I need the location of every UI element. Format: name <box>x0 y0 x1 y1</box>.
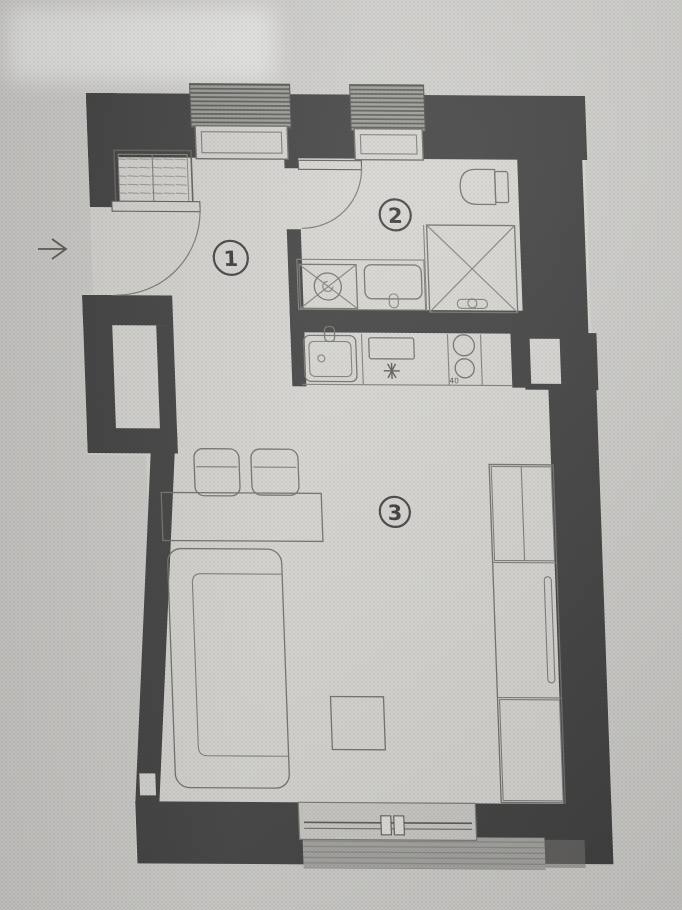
balcony-door <box>298 802 476 840</box>
svg-text:1: 1 <box>223 247 238 271</box>
balcony-door-mullion <box>394 816 405 835</box>
shaft-wall-bottom <box>87 428 178 454</box>
right-wall-niche <box>530 339 562 384</box>
window-left <box>190 84 293 160</box>
left-wall-notch <box>139 773 156 795</box>
room-label-3: 3 <box>379 497 410 527</box>
entrance-arrow-icon <box>38 239 66 259</box>
floorplan-photo: 40 <box>0 0 682 910</box>
shaft-wall-top <box>82 295 173 326</box>
floorplan-drawing: 40 <box>0 0 682 910</box>
svg-text:40: 40 <box>449 376 459 385</box>
svg-text:3: 3 <box>387 501 402 525</box>
bottom-left-wall <box>135 801 305 864</box>
svg-text:2: 2 <box>388 204 403 228</box>
balcony-slab <box>302 836 585 870</box>
window-right <box>350 85 427 160</box>
balcony-door-mullion <box>381 816 392 835</box>
room-label-2: 2 <box>379 199 411 230</box>
hall-closet <box>114 150 193 205</box>
room-label-1: 1 <box>213 241 248 275</box>
